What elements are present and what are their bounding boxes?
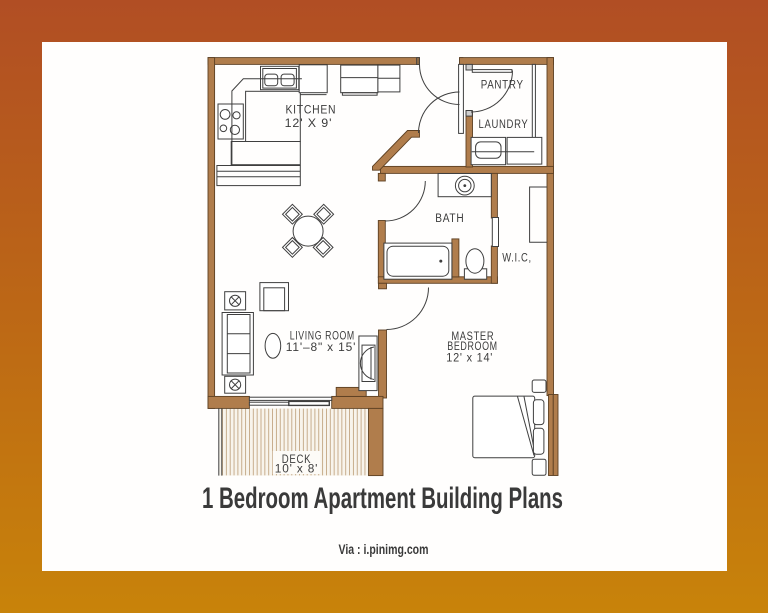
svg-text:PANTRY: PANTRY [481, 80, 524, 92]
svg-text:LAUNDRY: LAUNDRY [479, 119, 529, 131]
svg-text:12' X 9': 12' X 9' [285, 118, 333, 130]
svg-text:W.I.C,: W.I.C, [502, 253, 532, 265]
svg-text:BEDROOM: BEDROOM [447, 341, 497, 353]
svg-text:10' x 8': 10' x 8' [275, 464, 318, 476]
svg-text:BATH: BATH [435, 213, 464, 225]
svg-text:11'–8" x 15': 11'–8" x 15' [286, 342, 356, 354]
svg-text:KITCHEN: KITCHEN [286, 105, 337, 117]
svg-text:Via : i.pinimg.com: Via : i.pinimg.com [339, 541, 429, 557]
svg-text:LIVING ROOM: LIVING ROOM [290, 330, 355, 342]
svg-text:1 Bedroom Apartment Building P: 1 Bedroom Apartment Building Plans [202, 482, 563, 515]
svg-text:12' x 14': 12' x 14' [446, 353, 493, 365]
